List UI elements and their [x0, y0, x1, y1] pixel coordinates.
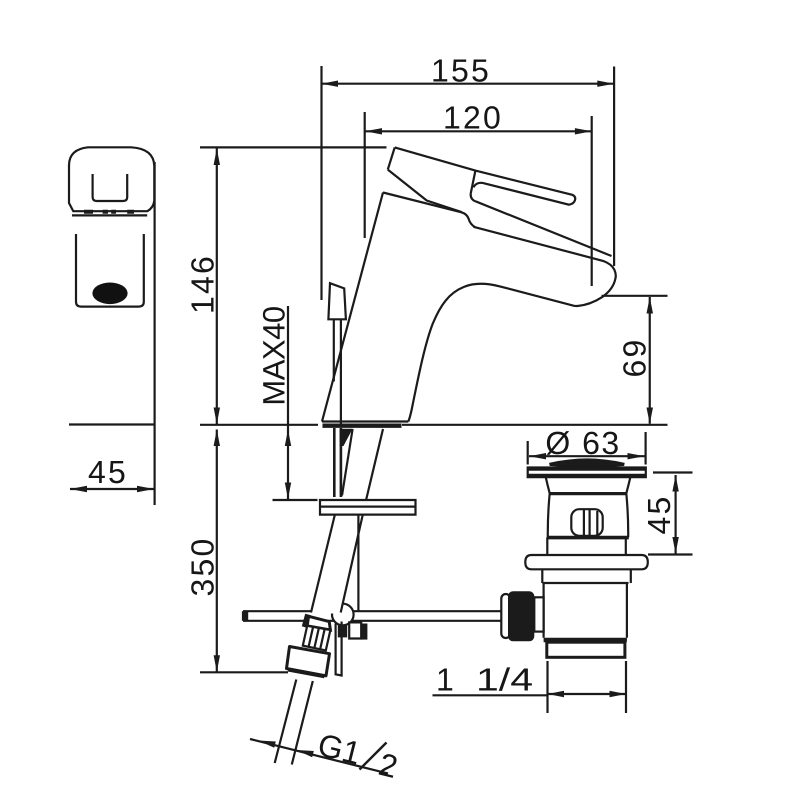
svg-text:155: 155 [431, 53, 491, 89]
svg-text:146: 146 [185, 254, 221, 314]
svg-text:350: 350 [185, 537, 221, 597]
svg-text:1: 1 [436, 662, 454, 698]
svg-text:G1: G1 [314, 726, 364, 771]
svg-text:1/4: 1/4 [476, 662, 533, 698]
svg-text:69: 69 [617, 338, 653, 378]
svg-text:Ø 63: Ø 63 [545, 425, 620, 461]
svg-text:45: 45 [88, 454, 128, 490]
svg-text:MAX40: MAX40 [257, 306, 292, 405]
svg-text:2: 2 [375, 746, 401, 785]
svg-text:45: 45 [641, 495, 677, 535]
svg-text:120: 120 [443, 99, 503, 135]
